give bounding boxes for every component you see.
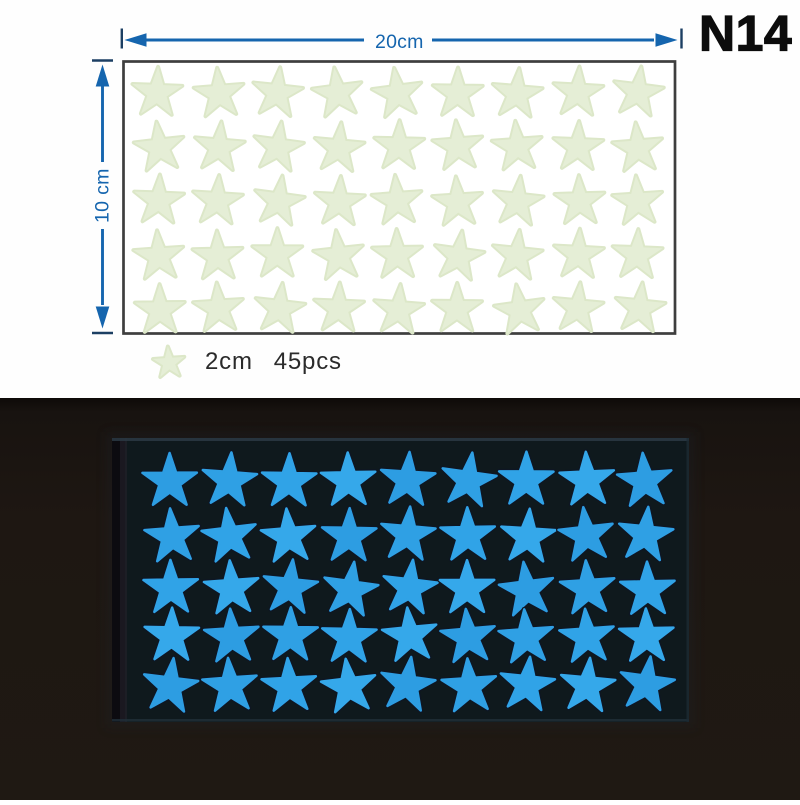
svg-text:10 cm: 10 cm (92, 168, 114, 223)
svg-text:N14: N14 (699, 6, 792, 62)
svg-text:20cm: 20cm (375, 31, 424, 53)
svg-text:2cm45pcs: 2cm45pcs (205, 348, 342, 375)
